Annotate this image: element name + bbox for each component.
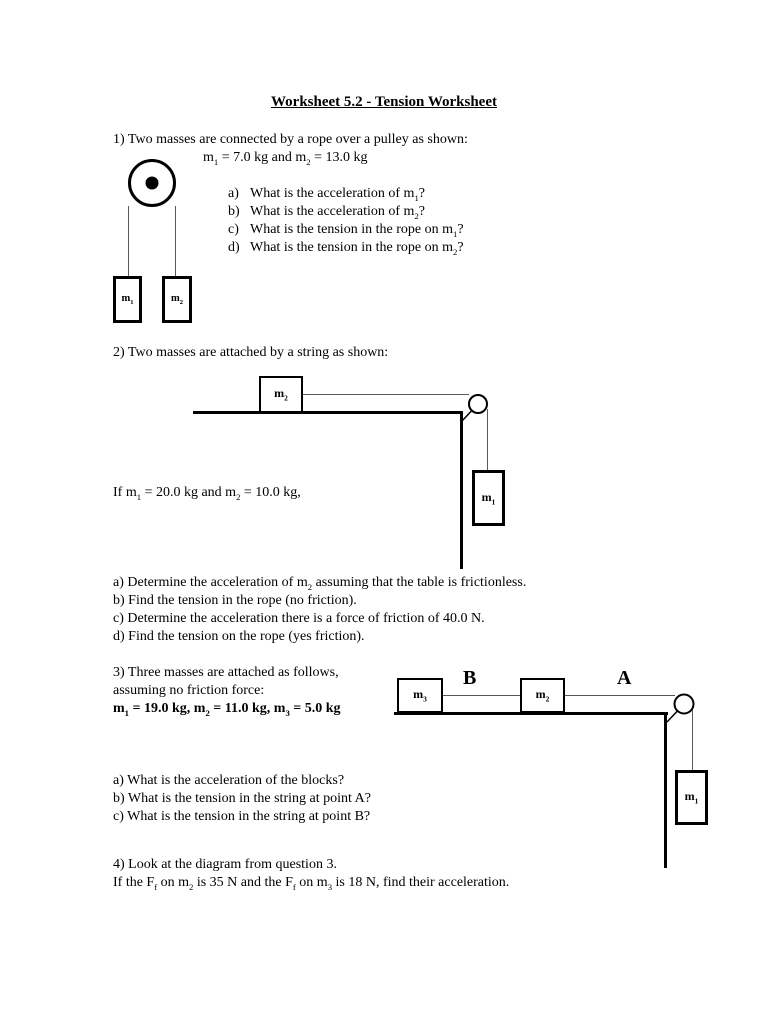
mass-box-m2: m2 xyxy=(520,678,565,713)
problem-3-questions: a) What is the acceleration of the block… xyxy=(113,772,371,826)
rope-right xyxy=(175,206,176,276)
question-item: b) What is the tension in the string at … xyxy=(113,790,371,808)
question-text: a) What is the acceleration of the block… xyxy=(113,773,344,788)
problem-4-text: 4) Look at the diagram from question 3. … xyxy=(113,856,509,892)
mass-box-m1: m1 xyxy=(472,470,505,526)
question-text: d) Find the tension on the rope (yes fri… xyxy=(113,629,365,644)
question-text: a) Determine the acceleration of m2 assu… xyxy=(113,575,526,590)
question-label: d) xyxy=(228,239,250,257)
table-surface xyxy=(394,712,668,715)
question-item: a) What is the acceleration of the block… xyxy=(113,772,371,790)
problem-2-prompt: 2) Two masses are attached by a string a… xyxy=(113,344,388,362)
problem-2-questions: a) Determine the acceleration of m2 assu… xyxy=(113,574,526,646)
question-item: c)What is the tension in the rope on m1? xyxy=(228,221,464,239)
question-text: What is the acceleration of m1? xyxy=(250,186,425,201)
question-text: b) What is the tension in the string at … xyxy=(113,791,371,806)
question-label: b) xyxy=(228,203,250,221)
problem-3-prompt-line1: 3) Three masses are attached as follows, xyxy=(113,664,341,682)
mass-box-m2: m2 xyxy=(259,376,303,413)
string-horizontal xyxy=(303,394,469,395)
mass-label-m1: m1 xyxy=(482,490,496,506)
pulley xyxy=(123,154,181,212)
mass-label-m3: m3 xyxy=(413,687,427,703)
string-point-b-label: B xyxy=(463,668,476,688)
problem-1-questions: a)What is the acceleration of m1? b)What… xyxy=(228,185,464,257)
string-a xyxy=(565,695,675,696)
problem-2-given: If m1 = 20.0 kg and m2 = 10.0 kg, xyxy=(113,484,301,506)
question-text: c) What is the tension in the string at … xyxy=(113,809,370,824)
mass-box-m1: m1 xyxy=(675,770,708,825)
problem-3-prompt-line2: assuming no friction force: xyxy=(113,682,341,700)
string-vertical xyxy=(692,710,693,770)
string-vertical xyxy=(487,409,488,470)
table-edge xyxy=(664,712,667,868)
question-text: What is the acceleration of m2? xyxy=(250,204,425,219)
problem-4-prompt-line1: 4) Look at the diagram from question 3. xyxy=(113,856,509,874)
question-item: b)What is the acceleration of m2? xyxy=(228,203,464,221)
string-b xyxy=(443,695,520,696)
problem-1-given: m1 = 7.0 kg and m2 = 13.0 kg xyxy=(203,149,367,171)
question-item: c) What is the tension in the string at … xyxy=(113,808,371,826)
table-edge xyxy=(460,411,463,569)
mass-label-m2: m2 xyxy=(274,386,288,402)
question-text: b) Find the tension in the rope (no fric… xyxy=(113,593,357,608)
question-item: a) Determine the acceleration of m2 assu… xyxy=(113,574,526,592)
mass-label-m2: m2 xyxy=(171,293,183,306)
problem-3-given: m1 = 19.0 kg, m2 = 11.0 kg, m3 = 5.0 kg xyxy=(113,700,341,718)
mass-box-m3: m3 xyxy=(397,678,443,713)
table-surface xyxy=(193,411,463,414)
mass-label-m1: m1 xyxy=(685,789,699,805)
problem-3-text: 3) Three masses are attached as follows,… xyxy=(113,664,341,718)
question-text: What is the tension in the rope on m2? xyxy=(250,240,464,255)
mass-box-m2: m2 xyxy=(162,276,192,323)
question-item: d)What is the tension in the rope on m2? xyxy=(228,239,464,257)
question-text: What is the tension in the rope on m1? xyxy=(250,222,464,237)
question-label: a) xyxy=(228,185,250,203)
question-item: a)What is the acceleration of m1? xyxy=(228,185,464,203)
rope-left xyxy=(128,206,129,276)
question-text: c) Determine the acceleration there is a… xyxy=(113,611,485,626)
question-item: d) Find the tension on the rope (yes fri… xyxy=(113,628,526,646)
problem-1-prompt: 1) Two masses are connected by a rope ov… xyxy=(113,131,468,149)
mass-label-m1: m1 xyxy=(122,293,134,306)
string-point-a-label: A xyxy=(617,668,631,688)
mass-label-m2: m2 xyxy=(536,687,550,703)
problem-4-prompt-line2: If the Ff on m2 is 35 N and the Ff on m3… xyxy=(113,874,509,892)
worksheet-title: Worksheet 5.2 - Tension Worksheet xyxy=(0,93,768,111)
question-item: c) Determine the acceleration there is a… xyxy=(113,610,526,628)
worksheet-page: Worksheet 5.2 - Tension Worksheet 1) Two… xyxy=(0,0,768,1024)
mass-box-m1: m1 xyxy=(113,276,142,323)
question-label: c) xyxy=(228,221,250,239)
question-item: b) Find the tension in the rope (no fric… xyxy=(113,592,526,610)
